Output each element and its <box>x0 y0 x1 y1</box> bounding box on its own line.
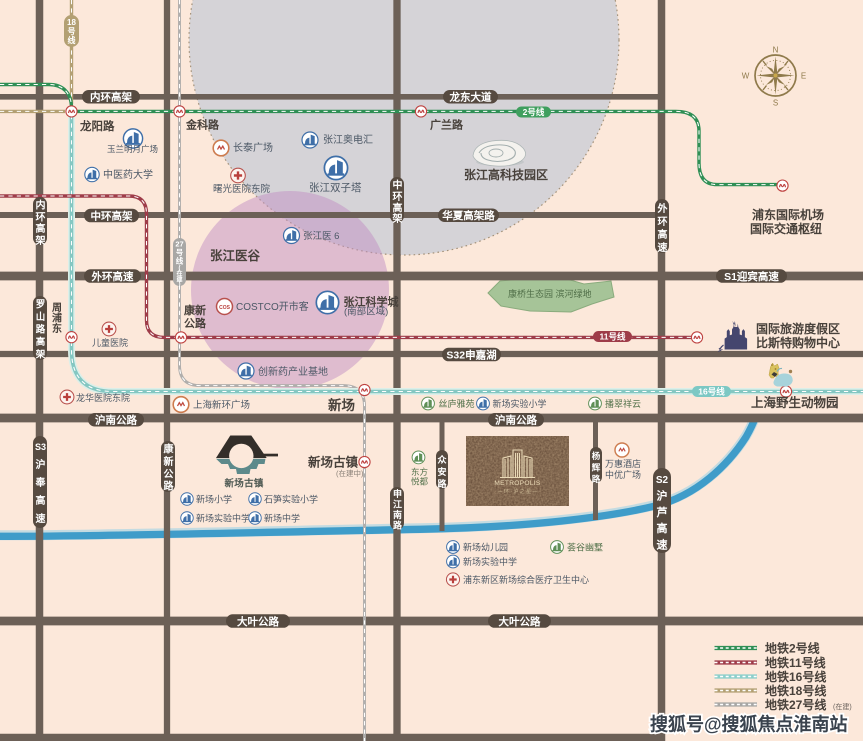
svg-text:杨: 杨 <box>592 451 601 461</box>
svg-text:路: 路 <box>36 324 46 336</box>
svg-text:内: 内 <box>36 199 46 212</box>
svg-text:新场古镇: 新场古镇 <box>225 478 264 490</box>
svg-text:石笋实验小学: 石笋实验小学 <box>264 494 318 505</box>
svg-text:搜狐号@搜狐焦点淮南站: 搜狐号@搜狐焦点淮南站 <box>650 714 848 735</box>
svg-text:山: 山 <box>36 311 46 323</box>
svg-text:高: 高 <box>36 494 46 507</box>
svg-text:号: 号 <box>68 27 76 36</box>
svg-text:申: 申 <box>393 488 402 499</box>
svg-text:在: 在 <box>176 270 182 278</box>
svg-text:S32申嘉湖: S32申嘉湖 <box>446 348 496 361</box>
svg-text:环: 环 <box>393 191 403 203</box>
svg-text:沪南公路: 沪南公路 <box>495 414 537 427</box>
svg-text:南: 南 <box>393 509 402 520</box>
svg-text:大叶公路: 大叶公路 <box>499 615 541 628</box>
svg-text:沪南公路: 沪南公路 <box>95 414 137 427</box>
svg-text:新场幼儿园: 新场幼儿园 <box>463 542 508 553</box>
svg-text:浦东国际机场: 浦东国际机场 <box>752 207 824 222</box>
svg-text:环: 环 <box>36 211 46 223</box>
svg-text:康: 康 <box>164 443 175 456</box>
svg-text:速: 速 <box>36 512 46 525</box>
svg-text:18: 18 <box>67 18 76 27</box>
svg-text:康新: 康新 <box>184 303 206 317</box>
svg-text:张江医谷: 张江医谷 <box>210 248 261 263</box>
svg-text:龙阳路: 龙阳路 <box>79 119 115 133</box>
svg-text:新场实验中学: 新场实验中学 <box>196 513 250 524</box>
svg-text:速: 速 <box>658 241 668 254</box>
svg-text:奉: 奉 <box>35 476 47 489</box>
svg-text:沪: 沪 <box>36 458 46 471</box>
svg-text:(南部区域): (南部区域) <box>344 306 388 318</box>
svg-text:中: 中 <box>393 179 403 192</box>
svg-text:中优广场: 中优广场 <box>605 469 641 480</box>
svg-text:金科路: 金科路 <box>185 118 220 132</box>
svg-text:路: 路 <box>164 480 175 493</box>
svg-text:东: 东 <box>52 322 62 335</box>
svg-text:万惠酒店: 万惠酒店 <box>605 458 641 469</box>
svg-text:外: 外 <box>657 202 668 215</box>
svg-text:众: 众 <box>437 454 447 465</box>
svg-text:新: 新 <box>164 455 174 468</box>
svg-text:玉兰明月广场: 玉兰明月广场 <box>107 144 158 154</box>
svg-text:罗: 罗 <box>36 300 46 311</box>
svg-text:中环高架: 中环高架 <box>91 209 133 222</box>
svg-text:高: 高 <box>36 222 46 235</box>
svg-text:高: 高 <box>658 228 668 241</box>
svg-text:上海新环广场: 上海新环广场 <box>193 399 250 411</box>
svg-text:): ) <box>179 282 181 288</box>
svg-text:东方: 东方 <box>411 467 428 477</box>
svg-text:中医药大学: 中医药大学 <box>103 168 153 181</box>
svg-text:架: 架 <box>392 212 403 225</box>
svg-text:龙东大道: 龙东大道 <box>449 91 492 104</box>
svg-text:新场中学: 新场中学 <box>264 513 300 524</box>
svg-text:E: E <box>801 72 806 81</box>
svg-text:— 环 · 沪 之 星 —: — 环 · 沪 之 星 — <box>497 488 537 495</box>
svg-text:周: 周 <box>52 302 62 314</box>
svg-text:COSTCO开市客: COSTCO开市客 <box>236 300 309 313</box>
svg-text:(在建): (在建) <box>833 702 852 711</box>
svg-text:播翠祥云: 播翠祥云 <box>605 398 641 409</box>
svg-text:张江奥电汇: 张江奥电汇 <box>323 133 373 146</box>
svg-text:架: 架 <box>35 234 46 247</box>
svg-text:11号线: 11号线 <box>600 332 626 342</box>
svg-text:S2: S2 <box>656 475 669 486</box>
svg-text:地铁2号线: 地铁2号线 <box>765 641 820 656</box>
svg-text:地铁18号线: 地铁18号线 <box>765 683 826 698</box>
svg-text:比斯特购物中心: 比斯特购物中心 <box>756 335 840 350</box>
svg-text:公路: 公路 <box>184 316 207 330</box>
svg-text:江: 江 <box>393 499 402 510</box>
svg-text:线: 线 <box>68 35 76 45</box>
svg-text:16号线: 16号线 <box>698 387 725 397</box>
svg-text:高: 高 <box>657 521 668 535</box>
svg-text:环: 环 <box>658 216 668 228</box>
svg-text:METROPOLIS: METROPOLIS <box>494 480 541 487</box>
svg-text:创新药产业基地: 创新药产业基地 <box>258 365 328 378</box>
svg-text:浦东新区新场综合医疗卫生中心: 浦东新区新场综合医疗卫生中心 <box>463 574 589 585</box>
svg-text:辉: 辉 <box>592 463 601 473</box>
svg-text:COS: COS <box>219 305 231 311</box>
svg-text:S3: S3 <box>35 442 46 452</box>
svg-text:路: 路 <box>393 520 403 531</box>
svg-text:大叶公路: 大叶公路 <box>237 615 279 628</box>
svg-text:沪: 沪 <box>657 488 668 502</box>
svg-text:芦: 芦 <box>657 505 668 519</box>
svg-text:地铁16号线: 地铁16号线 <box>765 669 826 684</box>
svg-text:公: 公 <box>164 468 174 480</box>
svg-text:高: 高 <box>393 202 403 215</box>
svg-text:外环高速: 外环高速 <box>91 270 134 283</box>
svg-text:速: 速 <box>657 538 668 552</box>
svg-text:N: N <box>773 46 779 55</box>
svg-text:新场古镇: 新场古镇 <box>308 455 359 470</box>
svg-text:华夏高架路: 华夏高架路 <box>442 209 495 222</box>
svg-text:路: 路 <box>437 478 447 489</box>
svg-text:荟谷幽墅: 荟谷幽墅 <box>567 542 603 553</box>
svg-text:新场小学: 新场小学 <box>196 494 232 505</box>
svg-text:架: 架 <box>35 349 46 361</box>
svg-text:地铁11号线: 地铁11号线 <box>765 655 826 670</box>
svg-text:长泰广场: 长泰广场 <box>233 141 273 154</box>
svg-text:安: 安 <box>437 466 446 477</box>
svg-text:W: W <box>742 72 750 81</box>
svg-text:(在建中): (在建中) <box>336 468 364 478</box>
svg-text:S1迎宾高速: S1迎宾高速 <box>724 270 779 283</box>
svg-text:龙华医院东院: 龙华医院东院 <box>76 392 130 403</box>
svg-text:新场实验中学: 新场实验中学 <box>463 556 517 567</box>
svg-text:浦: 浦 <box>52 312 62 325</box>
svg-text:新场: 新场 <box>328 397 355 413</box>
svg-text:2号线: 2号线 <box>523 107 545 117</box>
svg-text:康桥生态园 滨河绿地: 康桥生态园 滨河绿地 <box>508 288 592 299</box>
svg-text:张江高科技园区: 张江高科技园区 <box>464 167 548 182</box>
svg-text:上海野生动物园: 上海野生动物园 <box>751 395 839 410</box>
svg-text:线: 线 <box>176 256 184 266</box>
svg-text:儿童医院: 儿童医院 <box>92 337 128 348</box>
svg-text:高: 高 <box>36 336 46 348</box>
svg-text:国际交通枢纽: 国际交通枢纽 <box>750 221 822 236</box>
svg-text:内环高架: 内环高架 <box>90 91 132 104</box>
svg-text:广兰路: 广兰路 <box>430 118 464 132</box>
svg-text:曙光医院东院: 曙光医院东院 <box>213 183 271 195</box>
svg-text:悦都: 悦都 <box>411 477 429 487</box>
svg-text:新场实验小学: 新场实验小学 <box>493 398 547 409</box>
svg-text:S: S <box>773 99 778 108</box>
svg-text:地铁27号线: 地铁27号线 <box>765 697 826 712</box>
svg-text:路: 路 <box>592 474 601 484</box>
svg-text:丝庐雅苑: 丝庐雅苑 <box>439 398 475 409</box>
svg-text:国际旅游度假区: 国际旅游度假区 <box>756 321 840 336</box>
svg-text:张江医 6: 张江医 6 <box>303 231 339 242</box>
svg-text:张江双子塔: 张江双子塔 <box>309 181 362 194</box>
